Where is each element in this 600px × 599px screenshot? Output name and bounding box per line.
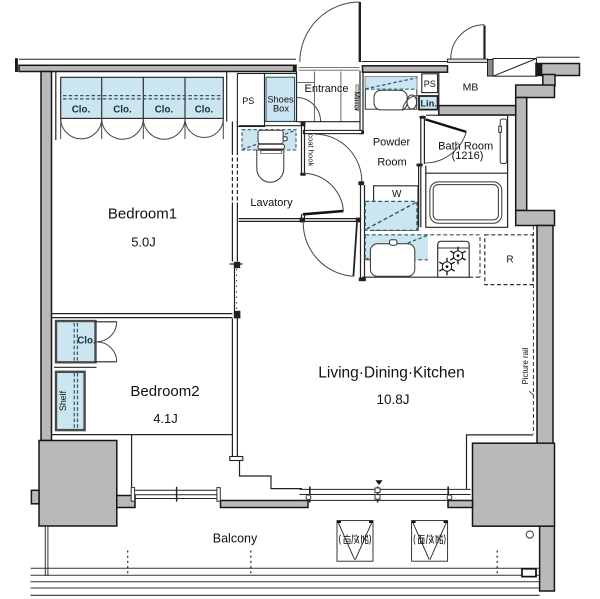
svg-text:Living·Dining·Kitchen: Living·Dining·Kitchen [318,365,464,382]
svg-text:Entrance: Entrance [304,83,348,95]
svg-text:Shelf: Shelf [58,390,68,411]
svg-text:W: W [392,189,402,200]
svg-text:5.0J: 5.0J [131,235,156,250]
svg-text:Clo.: Clo. [113,105,132,116]
svg-text:PS: PS [424,79,436,89]
svg-text:(1216): (1216) [452,150,484,162]
svg-text:4.1J: 4.1J [153,411,178,426]
svg-text:coat hook: coat hook [307,133,316,166]
svg-text:Clo.: Clo. [155,105,174,116]
svg-text:Picture rail: Picture rail [521,347,530,384]
svg-text:Clo.: Clo. [72,105,91,116]
svg-text:MB: MB [463,82,479,94]
svg-text:Bedroom2: Bedroom2 [130,383,199,400]
svg-text:Clo.: Clo. [77,336,96,347]
svg-text:PS: PS [242,96,254,106]
svg-text:Room: Room [377,157,406,169]
svg-text:Box: Box [273,103,289,113]
svg-text:R: R [506,254,513,265]
svg-text:Clo.: Clo. [195,105,214,116]
svg-text:Balcony: Balcony [213,531,258,545]
svg-text:Lin.: Lin. [420,98,437,108]
svg-text:Lavatory: Lavatory [250,197,293,209]
svg-text:Powder: Powder [373,137,411,149]
svg-text:Bedroom1: Bedroom1 [108,206,177,223]
svg-text:10.8J: 10.8J [376,392,409,407]
